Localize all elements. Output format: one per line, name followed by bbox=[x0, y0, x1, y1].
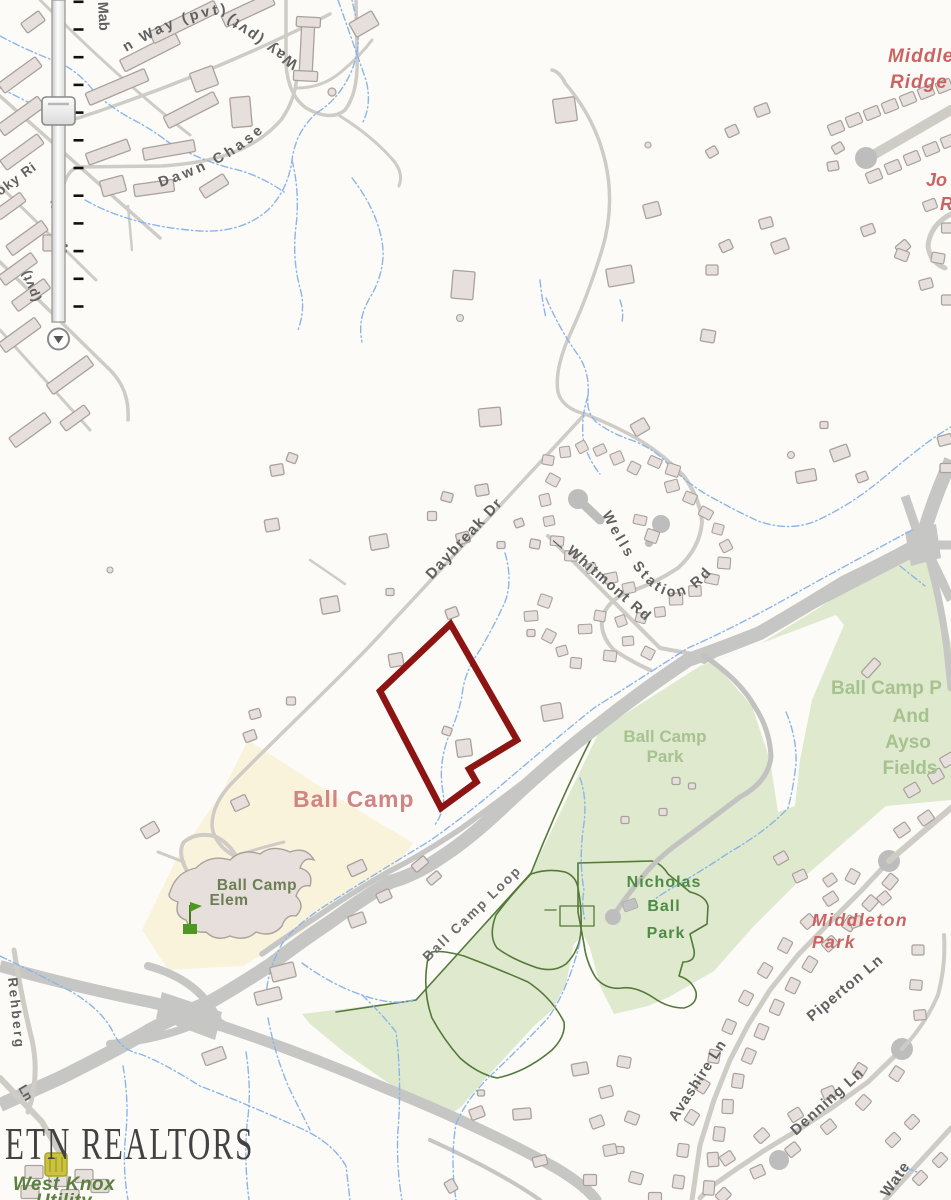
svg-text:ETN REALTORS: ETN REALTORS bbox=[5, 1119, 254, 1169]
svg-text:Ball: Ball bbox=[647, 898, 680, 915]
svg-text:Ridge: Ridge bbox=[890, 72, 948, 93]
svg-text:Middleton: Middleton bbox=[812, 910, 908, 930]
svg-text:Mab: Mab bbox=[94, 1, 112, 31]
svg-text:Park: Park bbox=[647, 925, 686, 942]
svg-text:Middle: Middle bbox=[888, 46, 951, 67]
svg-text:Park: Park bbox=[647, 747, 684, 766]
svg-text:Utility: Utility bbox=[36, 1191, 93, 1200]
svg-text:Jo: Jo bbox=[926, 170, 947, 190]
svg-text:Park: Park bbox=[812, 932, 856, 952]
svg-text:Nicholas: Nicholas bbox=[627, 874, 702, 891]
svg-text:Ball Camp: Ball Camp bbox=[293, 786, 414, 812]
svg-text:Ball Camp: Ball Camp bbox=[623, 727, 706, 746]
svg-text:And: And bbox=[893, 706, 930, 727]
svg-text:Elem: Elem bbox=[209, 892, 248, 909]
svg-text:Fields: Fields bbox=[883, 758, 938, 779]
svg-text:Ayso: Ayso bbox=[885, 732, 931, 753]
svg-text:R: R bbox=[940, 194, 951, 214]
svg-text:Ball Camp P: Ball Camp P bbox=[831, 678, 942, 699]
